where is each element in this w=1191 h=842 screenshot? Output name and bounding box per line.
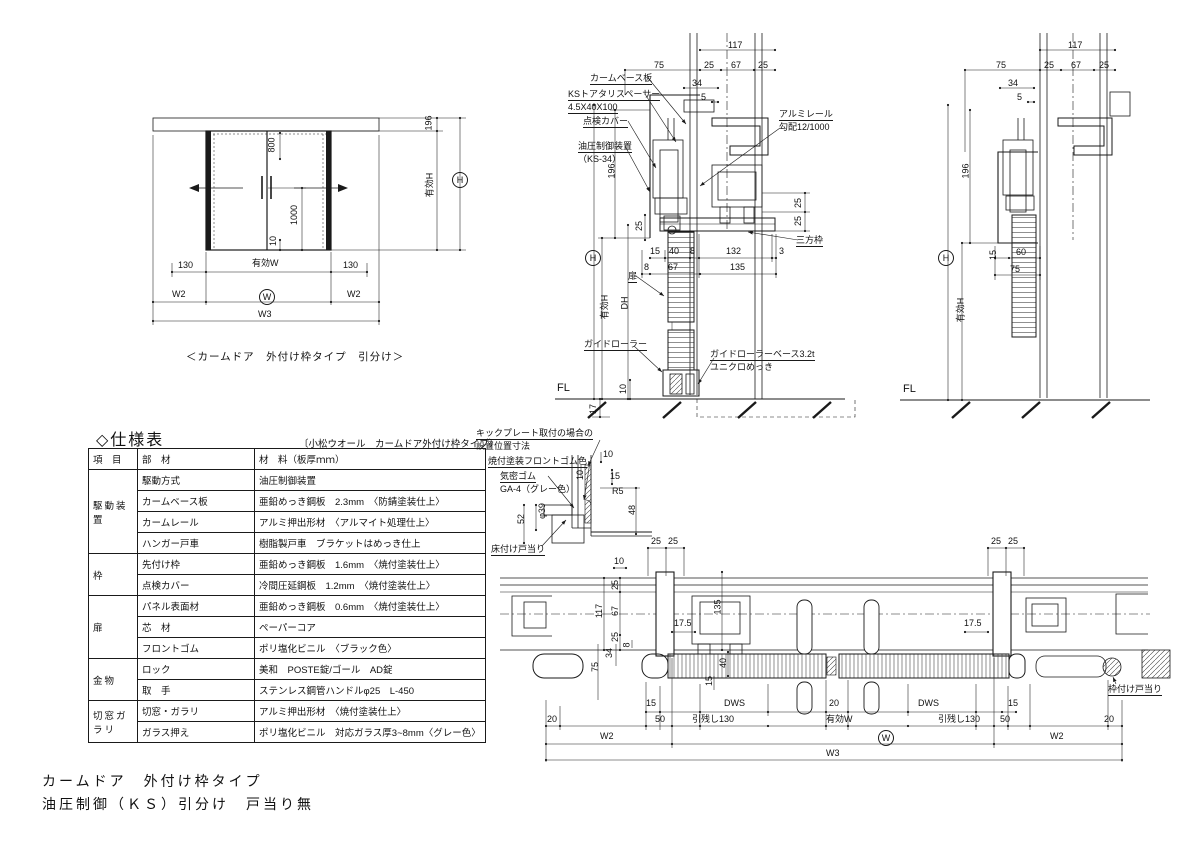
dim-plan-2: 25 xyxy=(991,536,1001,546)
spec-row: ガラス押えポリ塩化ビニル 対応ガラス厚3~8mm〈グレー色〉 xyxy=(89,722,486,743)
spec-part: カームベース板 xyxy=(138,491,255,512)
spec-row: 芯 材ペーパーコア xyxy=(89,617,486,638)
dim-w-circle: W xyxy=(259,289,275,305)
dim-plan-27: 50 xyxy=(1000,714,1010,724)
spec-part: 切窓・ガラリ xyxy=(138,701,255,722)
spec-part: 点検カバー xyxy=(138,575,255,596)
dim-section_mid-20: 15 xyxy=(650,246,660,256)
spec-header-row: 項 目 部 材 材 料（板厚ｍｍ） xyxy=(89,449,486,470)
dim-plan-6: 117 xyxy=(594,604,604,618)
dim-yuko-h: 有効H xyxy=(424,173,434,198)
dim-plan-14: 17.5 xyxy=(964,618,982,628)
label-sanpo-waku: 三方枠 xyxy=(796,235,823,247)
dim-section_right-6: 5 xyxy=(1017,92,1022,102)
dim-section_mid-27: 135 xyxy=(730,262,745,272)
spec-row: 点検カバー冷間圧延鋼板 1.2mm 〈焼付塗装仕上〉 xyxy=(89,575,486,596)
dim-10-floor: 10 xyxy=(268,236,278,246)
dim-130-left: 130 xyxy=(178,260,193,270)
label-unichro: ユニクロめっき xyxy=(710,362,773,372)
spec-material: 亜鉛めっき鋼板 1.6mm 〈焼付塗装仕上〉 xyxy=(255,554,486,575)
dim-section_right-4: 25 xyxy=(1099,60,1109,70)
dim-section_mid-18: 25 xyxy=(793,216,803,226)
dim-hikinokoshi-left: 引残し130 xyxy=(692,714,734,724)
label-kimitsu-rubber: 気密ゴム xyxy=(500,471,536,483)
spec-material: 美和 POSTE錠/ゴール AD錠 xyxy=(255,659,486,680)
dim-h-circle-mid: H xyxy=(585,250,601,266)
label-alumi-rail: アルミレール xyxy=(779,109,833,121)
spec-part: 駆動方式 xyxy=(138,470,255,491)
dim-section_mid-23: 132 xyxy=(726,246,741,256)
dim-w2-right: W2 xyxy=(347,289,361,299)
label-inspection-cover: 点検カバー xyxy=(583,116,628,128)
dim-plan-7: 67 xyxy=(610,606,620,616)
dim-117: 117 xyxy=(728,40,742,50)
spec-part: ガラス押え xyxy=(138,722,255,743)
spec-row: カームベース板亜鉛めっき鋼板 2.3mm 〈防錆塗装仕上〉 xyxy=(89,491,486,512)
drawing-title-line2: 油圧制御（ＫＳ）引分け 戸当り無 xyxy=(42,793,314,816)
dim-plan-31: W2 xyxy=(1050,731,1064,741)
dim-section_mid-6: 5 xyxy=(701,92,706,102)
dim-yuko-w-plan: 有効W xyxy=(826,714,853,724)
spec-part: 先付け枠 xyxy=(138,554,255,575)
spec-row: 駆動装置駆動方式油圧制御装置 xyxy=(89,470,486,491)
spec-material: 亜鉛めっき鋼板 0.6mm 〈焼付塗装仕上〉 xyxy=(255,596,486,617)
label-calm-base-plate: カームベース板 xyxy=(590,73,652,85)
label-ks-spacer: KSトアタリスペーサー xyxy=(568,89,660,101)
cad-sheet: 800100010196有効HH130有効W130W2WW2W311775256… xyxy=(0,0,1191,842)
spec-group-label: 金物 xyxy=(89,659,138,701)
drawing-title: カームドア 外付け枠タイプ 油圧制御（ＫＳ）引分け 戸当り無 xyxy=(42,770,314,816)
dim-w3: W3 xyxy=(258,309,272,319)
spec-material: ポリ塩化ビニル 対応ガラス厚3~8mm〈グレー色〉 xyxy=(255,722,486,743)
dim-800: 800 xyxy=(267,137,277,152)
label-fl-mid: FL xyxy=(557,383,570,393)
spec-part: 取 手 xyxy=(138,680,255,701)
dim-section_right-0: 117 xyxy=(1068,40,1082,50)
dim-plan-5: 25 xyxy=(610,580,620,590)
dim-detail-8: 48 xyxy=(627,505,637,515)
dim-detail-9: 10 xyxy=(575,470,585,480)
spec-part: カームレール xyxy=(138,512,255,533)
dim-section_mid-26: 67 xyxy=(668,262,678,272)
label-fl-right: FL xyxy=(903,384,916,394)
spec-part: 芯 材 xyxy=(138,617,255,638)
dim-h-circle-right: H xyxy=(938,250,954,266)
dim-section_right-5: 34 xyxy=(1008,78,1018,88)
spec-header-material: 材 料（板厚ｍｍ） xyxy=(255,449,486,470)
elevation-caption: ＜カームドア 外付け枠タイプ 引分け＞ xyxy=(186,349,404,364)
spec-row: フロントゴムポリ塩化ビニル 〈ブラック色〉 xyxy=(89,638,486,659)
dim-section_mid-17: 25 xyxy=(793,198,803,208)
dim-w-circle-plan: W xyxy=(878,730,894,746)
dim-section_right-9: 有効H xyxy=(955,298,965,323)
spec-table-title: ◇仕様表 xyxy=(96,426,164,450)
dim-section_mid-4: 25 xyxy=(758,60,768,70)
spec-row: ハンガー戸車樹脂製戸車 ブラケットはめっき仕上 xyxy=(89,533,486,554)
dim-dws-right: DWS xyxy=(918,698,939,708)
dim-section_right-2: 25 xyxy=(1044,60,1054,70)
dim-detail-11: 52 xyxy=(516,514,526,524)
spec-row: 扉パネル表面材亜鉛めっき鋼板 0.6mm 〈焼付塗装仕上〉 xyxy=(89,596,486,617)
dim-plan-19: 20 xyxy=(829,698,839,708)
drawing-title-line1: カームドア 外付け枠タイプ xyxy=(42,770,314,793)
spec-table: 項 目 部 材 材 料（板厚ｍｍ） 駆動装置駆動方式油圧制御装置カームベース板亜… xyxy=(88,448,486,743)
spec-group-label: 枠 xyxy=(89,554,138,596)
dim-detail-10: φ39 xyxy=(537,503,547,519)
label-floor-stop: 床付け戸当り xyxy=(491,544,545,556)
spec-row: 取 手ステンレス鋼管ハンドルφ25 L-450 xyxy=(89,680,486,701)
dim-detail-7: R5 xyxy=(612,486,624,496)
dim-section_right-10: 15 xyxy=(988,250,998,260)
dim-section_mid-2: 25 xyxy=(704,60,714,70)
dim-section_mid-5: 34 xyxy=(692,78,702,88)
spec-part: フロントゴム xyxy=(138,638,255,659)
dim-plan-1: 25 xyxy=(668,536,678,546)
label-ks-spacer-size: 4.5X40X100 xyxy=(568,102,618,114)
dim-plan-0: 25 xyxy=(651,536,661,546)
dim-section_right-11: 60 xyxy=(1016,247,1026,257)
spec-material: 亜鉛めっき鋼板 2.3mm 〈防錆塗装仕上〉 xyxy=(255,491,486,512)
dim-detail-6: 15 xyxy=(610,471,620,481)
dim-plan-11: 75 xyxy=(590,662,600,672)
dim-plan-12: 135 xyxy=(713,599,723,614)
spec-part: ハンガー戸車 xyxy=(138,533,255,554)
spec-material: ポリ塩化ビニル 〈ブラック色〉 xyxy=(255,638,486,659)
dim-plan-13: 17.5 xyxy=(674,618,692,628)
dim-plan-32: W3 xyxy=(826,748,840,758)
label-rail-slope: 勾配12/1000 xyxy=(779,122,830,132)
dim-section_mid-36: 10 xyxy=(618,384,628,394)
dim-section_mid-16: 25 xyxy=(634,221,644,231)
dim-plan-4: 10 xyxy=(614,556,624,566)
label-hydraulic-unit: 油圧制御装置 xyxy=(578,141,632,153)
spec-row: 切窓ガラリ切窓・ガラリアルミ押出形材 〈焼付塗装仕上〉 xyxy=(89,701,486,722)
dim-w2-left: W2 xyxy=(172,289,186,299)
spec-row: カームレールアルミ押出形材 〈アルマイト処理仕上〉 xyxy=(89,512,486,533)
spec-part: ロック xyxy=(138,659,255,680)
dim-196: 196 xyxy=(424,115,434,130)
dim-plan-10: 8 xyxy=(622,642,632,647)
spec-material: 樹脂製戸車 ブラケットはめっき仕上 xyxy=(255,533,486,554)
dim-section_mid-15: 196 xyxy=(607,163,617,178)
dim-hikinokoshi-right: 引残し130 xyxy=(938,714,980,724)
dim-plan-23: 50 xyxy=(655,714,665,724)
dim-h-circle: H xyxy=(452,172,468,188)
dim-130-right: 130 xyxy=(343,260,358,270)
spec-row: 枠先付け枠亜鉛めっき鋼板 1.6mm 〈焼付塗装仕上〉 xyxy=(89,554,486,575)
dim-section_right-7: 196 xyxy=(961,163,971,178)
dim-dws-left: DWS xyxy=(724,698,745,708)
dim-plan-8: 25 xyxy=(610,632,620,642)
dim-section_mid-30: DH xyxy=(620,297,630,310)
dim-plan-17: 15 xyxy=(646,698,656,708)
dim-plan-3: 25 xyxy=(1008,536,1018,546)
dim-section_mid-25: 8 xyxy=(644,262,649,272)
dim-yuko-w: 有効W xyxy=(252,258,279,268)
dim-section_mid-22: 8 xyxy=(690,246,695,256)
label-ga4: GA-4（グレー色） xyxy=(500,484,575,494)
dim-section_right-1: 75 xyxy=(996,60,1006,70)
dim-section_right-12: 75 xyxy=(1010,264,1020,274)
dim-plan-22: 20 xyxy=(547,714,557,724)
spec-group-label: 扉 xyxy=(89,596,138,659)
spec-material: 冷間圧延鋼板 1.2mm 〈焼付塗装仕上〉 xyxy=(255,575,486,596)
dim-section_mid-37: 17 xyxy=(588,404,598,414)
dim-section_mid-1: 75 xyxy=(654,60,664,70)
dim-plan-15: 40 xyxy=(718,658,728,668)
spec-group-label: 駆動装置 xyxy=(89,470,138,554)
label-guide-roller-base: ガイドローラーベース3.2t xyxy=(710,349,815,361)
dim-section_mid-21: 40 xyxy=(669,246,679,256)
dim-section_right-3: 67 xyxy=(1071,60,1081,70)
dim-1000: 1000 xyxy=(289,205,299,225)
label-front-rubber: 焼付塗装フロントゴム色 xyxy=(488,456,587,468)
dim-detail-5: 10 xyxy=(603,449,613,459)
spec-material: ステンレス鋼管ハンドルφ25 L-450 xyxy=(255,680,486,701)
dim-plan-28: 20 xyxy=(1104,714,1114,724)
dim-section_mid-24: 3 xyxy=(779,246,784,256)
label-guide-roller: ガイドローラー xyxy=(584,339,647,351)
spec-material: ペーパーコア xyxy=(255,617,486,638)
spec-material: アルミ押出形材 〈焼付塗装仕上〉 xyxy=(255,701,486,722)
dim-plan-21: 15 xyxy=(1008,698,1018,708)
spec-row: 金物ロック美和 POSTE錠/ゴール AD錠 xyxy=(89,659,486,680)
spec-header-item: 項 目 xyxy=(89,449,138,470)
spec-part: パネル表面材 xyxy=(138,596,255,617)
dim-section_mid-3: 67 xyxy=(731,60,741,70)
dim-plan-9: 34 xyxy=(604,648,614,658)
dim-plan-29: W2 xyxy=(600,731,614,741)
spec-material: アルミ押出形材 〈アルマイト処理仕上〉 xyxy=(255,512,486,533)
label-frame-stop: 枠付け戸当り xyxy=(1108,684,1162,696)
spec-material: 油圧制御装置 xyxy=(255,470,486,491)
dim-plan-16: 15 xyxy=(704,676,714,686)
spec-header-part: 部 材 xyxy=(138,449,255,470)
spec-group-label: 切窓ガラリ xyxy=(89,701,138,743)
dim-section_mid-29: 有効H xyxy=(599,295,609,320)
label-door: 扉 xyxy=(628,271,637,283)
